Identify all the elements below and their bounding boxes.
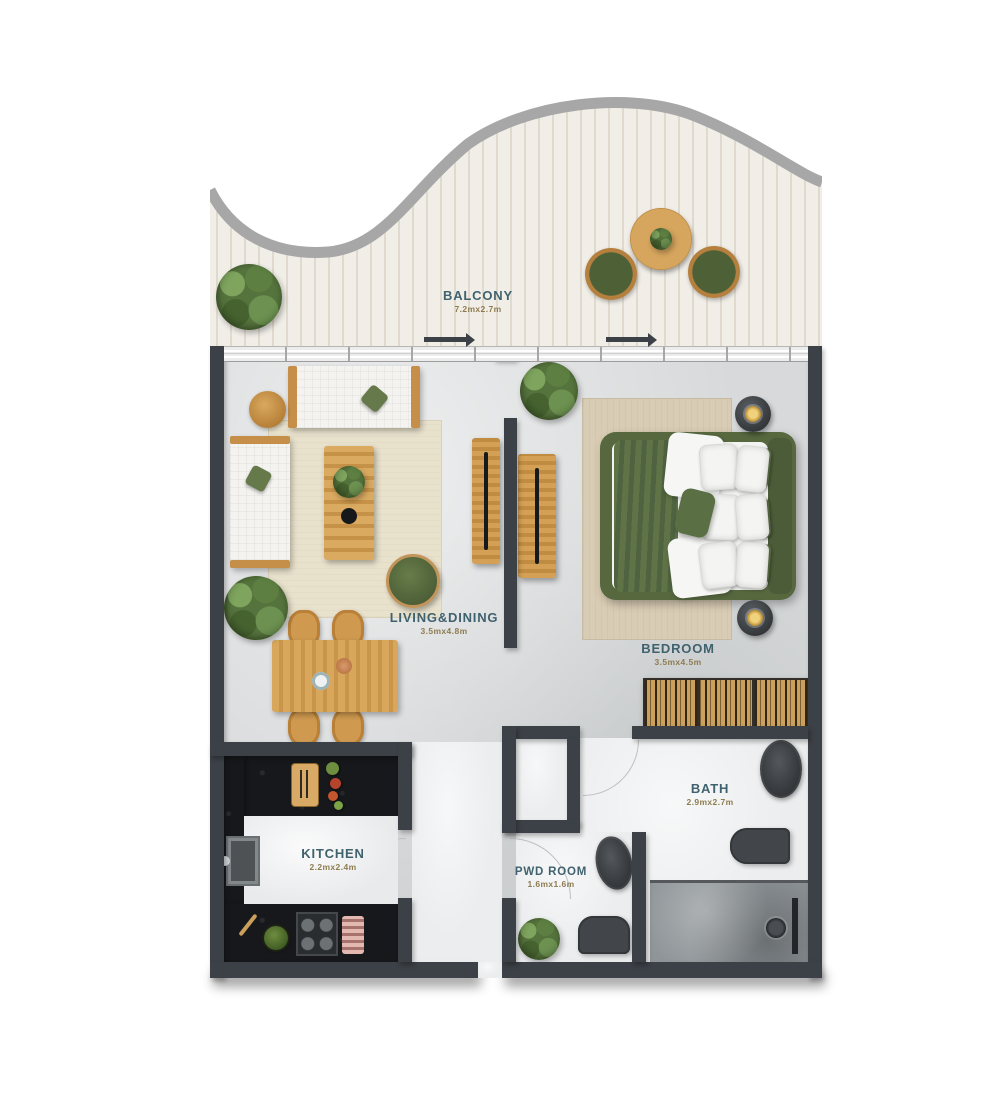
sofa-top-pillow [360, 384, 390, 414]
wall-left [210, 346, 224, 978]
sofa-left-arm-top [230, 436, 290, 444]
pwd-plant [518, 918, 560, 960]
cutting-board [292, 764, 318, 806]
tv-bedroom [535, 468, 539, 565]
sofa-top [288, 366, 420, 428]
wardrobe [643, 678, 811, 730]
sofa-top-arm-right [411, 366, 420, 428]
wall-partition-living-bedroom [504, 418, 517, 648]
balcony-table-plant [650, 228, 672, 250]
balcony-window [224, 346, 808, 362]
wall-closet-right [567, 738, 580, 826]
floor-plan: BALCONY 7.2mx2.7m [0, 0, 995, 1100]
stove [296, 912, 338, 956]
shower-bar [792, 898, 798, 954]
lamp-bottom [747, 610, 763, 626]
balcony-chair-left [585, 248, 637, 300]
bath-sink [760, 740, 802, 798]
cooking-pot [264, 926, 288, 950]
kitchen-towel [342, 916, 364, 954]
balcony-table [630, 208, 692, 270]
kitchen-island-floor [244, 816, 398, 904]
coffee-table-bowl [341, 508, 357, 524]
sofa-left-arm-bottom [230, 560, 290, 568]
sliding-door-arrow-right [606, 337, 648, 342]
vegetable-green-2 [334, 801, 343, 810]
bath-toilet [730, 828, 790, 864]
dining-table [272, 640, 398, 712]
lamp-top [745, 406, 761, 422]
nightstand-bottom [737, 600, 773, 636]
bedroom-plant [520, 362, 578, 420]
bed-pillow-2 [734, 444, 771, 493]
pwd-toilet [578, 916, 630, 954]
kitchen-sink [226, 836, 260, 886]
bed-pillow-1 [698, 443, 739, 492]
wall-pwd-left-lower [502, 898, 516, 962]
wall-kitchen-right-upper [398, 742, 412, 830]
vegetable-green-1 [326, 762, 339, 775]
wall-bottom-left [210, 962, 478, 978]
tv-console-bedroom [518, 454, 556, 578]
nightstand-top [735, 396, 771, 432]
wall-kitchen-right-lower [398, 898, 412, 962]
dining-chair-4 [332, 708, 364, 746]
wall-bottom-right [502, 962, 822, 978]
bed-pillow-4 [734, 493, 770, 542]
sofa-left [230, 436, 290, 568]
sliding-door-arrow-left [424, 337, 466, 342]
wall-bedroom-bottom [632, 726, 808, 739]
bed-pillow-6 [734, 541, 769, 589]
living-side-table [249, 391, 286, 428]
wall-pwd-left-upper [502, 726, 516, 833]
wall-kitchen-top [210, 742, 412, 756]
bed-headboard [768, 438, 792, 594]
bed [600, 432, 796, 600]
sofa-left-pillow [244, 464, 272, 492]
dining-plate [312, 672, 330, 690]
tv-living [484, 452, 488, 550]
vegetable-red-1 [330, 778, 341, 789]
balcony-chair-right [688, 246, 740, 298]
wall-right [808, 346, 822, 978]
vegetable-red-2 [328, 791, 338, 801]
dining-chair-3 [288, 708, 320, 746]
entry-floor [478, 962, 502, 978]
tv-console-living [472, 438, 500, 564]
living-plant [224, 576, 288, 640]
dining-bowl [336, 658, 352, 674]
sofa-top-arm-left [288, 366, 297, 428]
coffee-table-plant [333, 466, 365, 498]
wall-pwd-bath-divider [632, 832, 646, 962]
balcony-deck [210, 94, 822, 356]
balcony-plant [216, 264, 282, 330]
coffee-table [324, 446, 374, 560]
pouf [386, 554, 440, 608]
bed-pillow-5 [697, 540, 740, 590]
shower-head [766, 918, 786, 938]
